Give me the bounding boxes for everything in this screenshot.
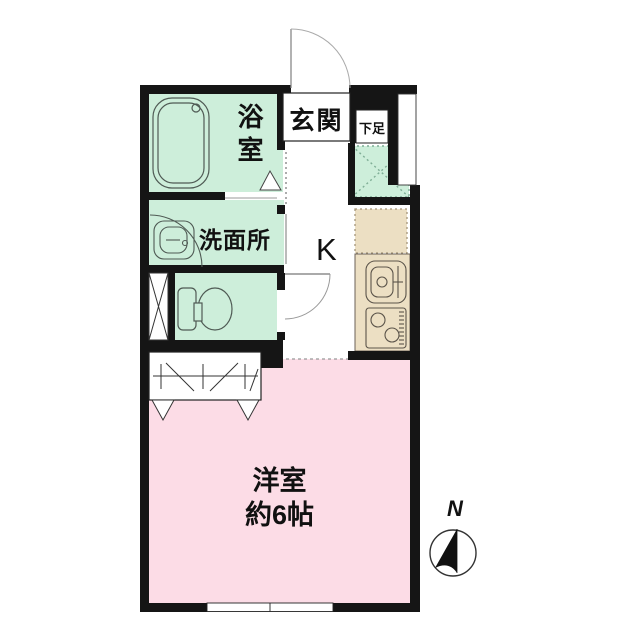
compass-icon: [430, 529, 476, 576]
pipe-space: [149, 273, 168, 340]
washroom-label: 洗面所: [199, 221, 271, 255]
entrance-side-window: [398, 94, 416, 185]
western-room-label: 洋室 約6帖: [149, 464, 410, 532]
floor-plan-drawing: [0, 0, 640, 640]
western-room-name: 洋室: [149, 464, 410, 498]
compass-north-label: N: [447, 496, 463, 522]
toilet-door-arc: [285, 274, 330, 319]
shoe-storage-label: 下足: [356, 118, 388, 137]
kitchen-label: K: [316, 232, 337, 268]
refrigerator-space: [355, 209, 407, 253]
entrance-label: 玄関: [283, 101, 350, 137]
western-room-size: 約6帖: [149, 498, 410, 532]
kitchen-counter: [355, 254, 410, 351]
floor-plan: 浴室 洗面所 玄関 下足 K 洋室 約6帖 N: [0, 0, 640, 640]
main-room-window: [207, 603, 333, 612]
entrance-door-arc: [291, 29, 350, 88]
bathroom-label: 浴室: [231, 103, 268, 169]
